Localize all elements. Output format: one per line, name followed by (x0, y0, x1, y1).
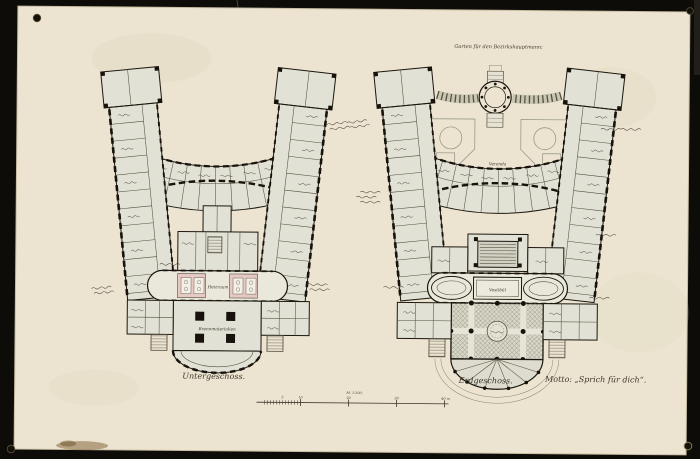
garden-label: Garten für den Bezirkshauptmann: (454, 44, 543, 51)
veranda-label: Veranda (489, 161, 507, 166)
label-vestibuel: Vestibül (489, 287, 507, 292)
caption-motto: Motto: „Sprich für dich“. (544, 375, 646, 385)
mounting-pin (7, 445, 15, 453)
stair-porch (267, 335, 283, 351)
scale-tick: 20 (345, 396, 351, 400)
scale-tick: 5 (281, 395, 283, 399)
stair-run (208, 237, 222, 253)
label-heizraum: Heizraum (207, 284, 229, 289)
stair-porch (549, 340, 565, 358)
hall-medallion (487, 321, 507, 341)
photo-backdrop: Heizraum Brennmaterialien (0, 0, 700, 459)
scale-tick: 40 m (440, 397, 450, 401)
mounting-pin (687, 8, 694, 15)
oval-room-right (523, 277, 563, 300)
architectural-drawing-photo: Heizraum Brennmaterialien (0, 0, 700, 459)
caption-untergeschoss: Untergeschoss. (182, 372, 245, 382)
great-hall (449, 300, 546, 362)
boiler-room-right (229, 274, 257, 298)
backing-edge-strip (694, 0, 700, 75)
label-brennmaterialien: Brennmaterialien (197, 326, 236, 331)
scale-label: M. 1:200. (345, 391, 363, 395)
drawing-sheet: Heizraum Brennmaterialien (14, 6, 692, 455)
oval-room-left (431, 276, 471, 299)
stair-porch (429, 339, 445, 357)
boiler-room-left (177, 273, 205, 297)
stair-porch (151, 334, 167, 350)
mounting-pin (684, 442, 692, 450)
caption-erdgeschoss: Erdgeschoss. (458, 376, 513, 385)
mounting-pin (33, 14, 41, 22)
